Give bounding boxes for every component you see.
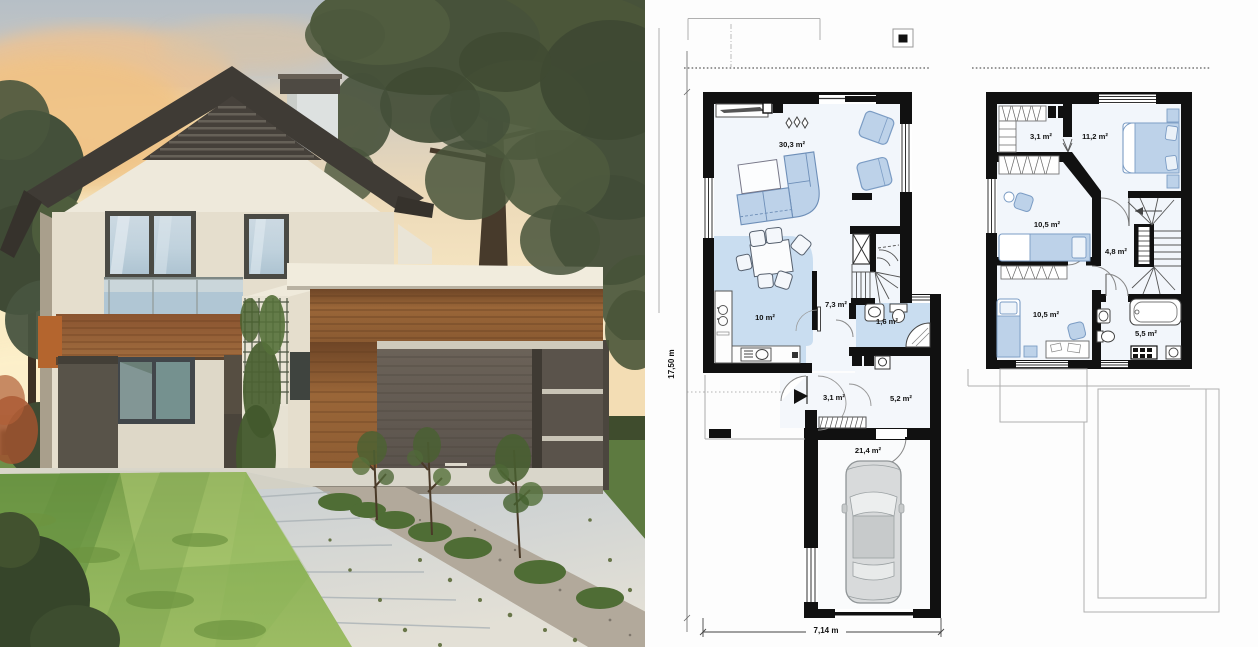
svg-text:10 m²: 10 m² bbox=[755, 313, 775, 322]
svg-text:10,5 m²: 10,5 m² bbox=[1033, 310, 1060, 319]
svg-text:5,2 m²: 5,2 m² bbox=[890, 394, 912, 403]
svg-text:7,14 m: 7,14 m bbox=[814, 626, 839, 635]
svg-text:30,3 m²: 30,3 m² bbox=[779, 140, 806, 149]
svg-text:17,50 m: 17,50 m bbox=[667, 349, 676, 378]
svg-text:3,1 m²: 3,1 m² bbox=[1030, 132, 1052, 141]
svg-text:5,5 m²: 5,5 m² bbox=[1135, 329, 1157, 338]
svg-text:7,3 m²: 7,3 m² bbox=[825, 300, 847, 309]
svg-text:4,8 m²: 4,8 m² bbox=[1105, 247, 1127, 256]
svg-text:10,5 m²: 10,5 m² bbox=[1034, 220, 1061, 229]
svg-text:3,1 m²: 3,1 m² bbox=[823, 393, 845, 402]
svg-text:21,4 m²: 21,4 m² bbox=[855, 446, 882, 455]
svg-text:11,2 m²: 11,2 m² bbox=[1082, 132, 1108, 141]
svg-text:1,6 m²: 1,6 m² bbox=[876, 317, 898, 326]
